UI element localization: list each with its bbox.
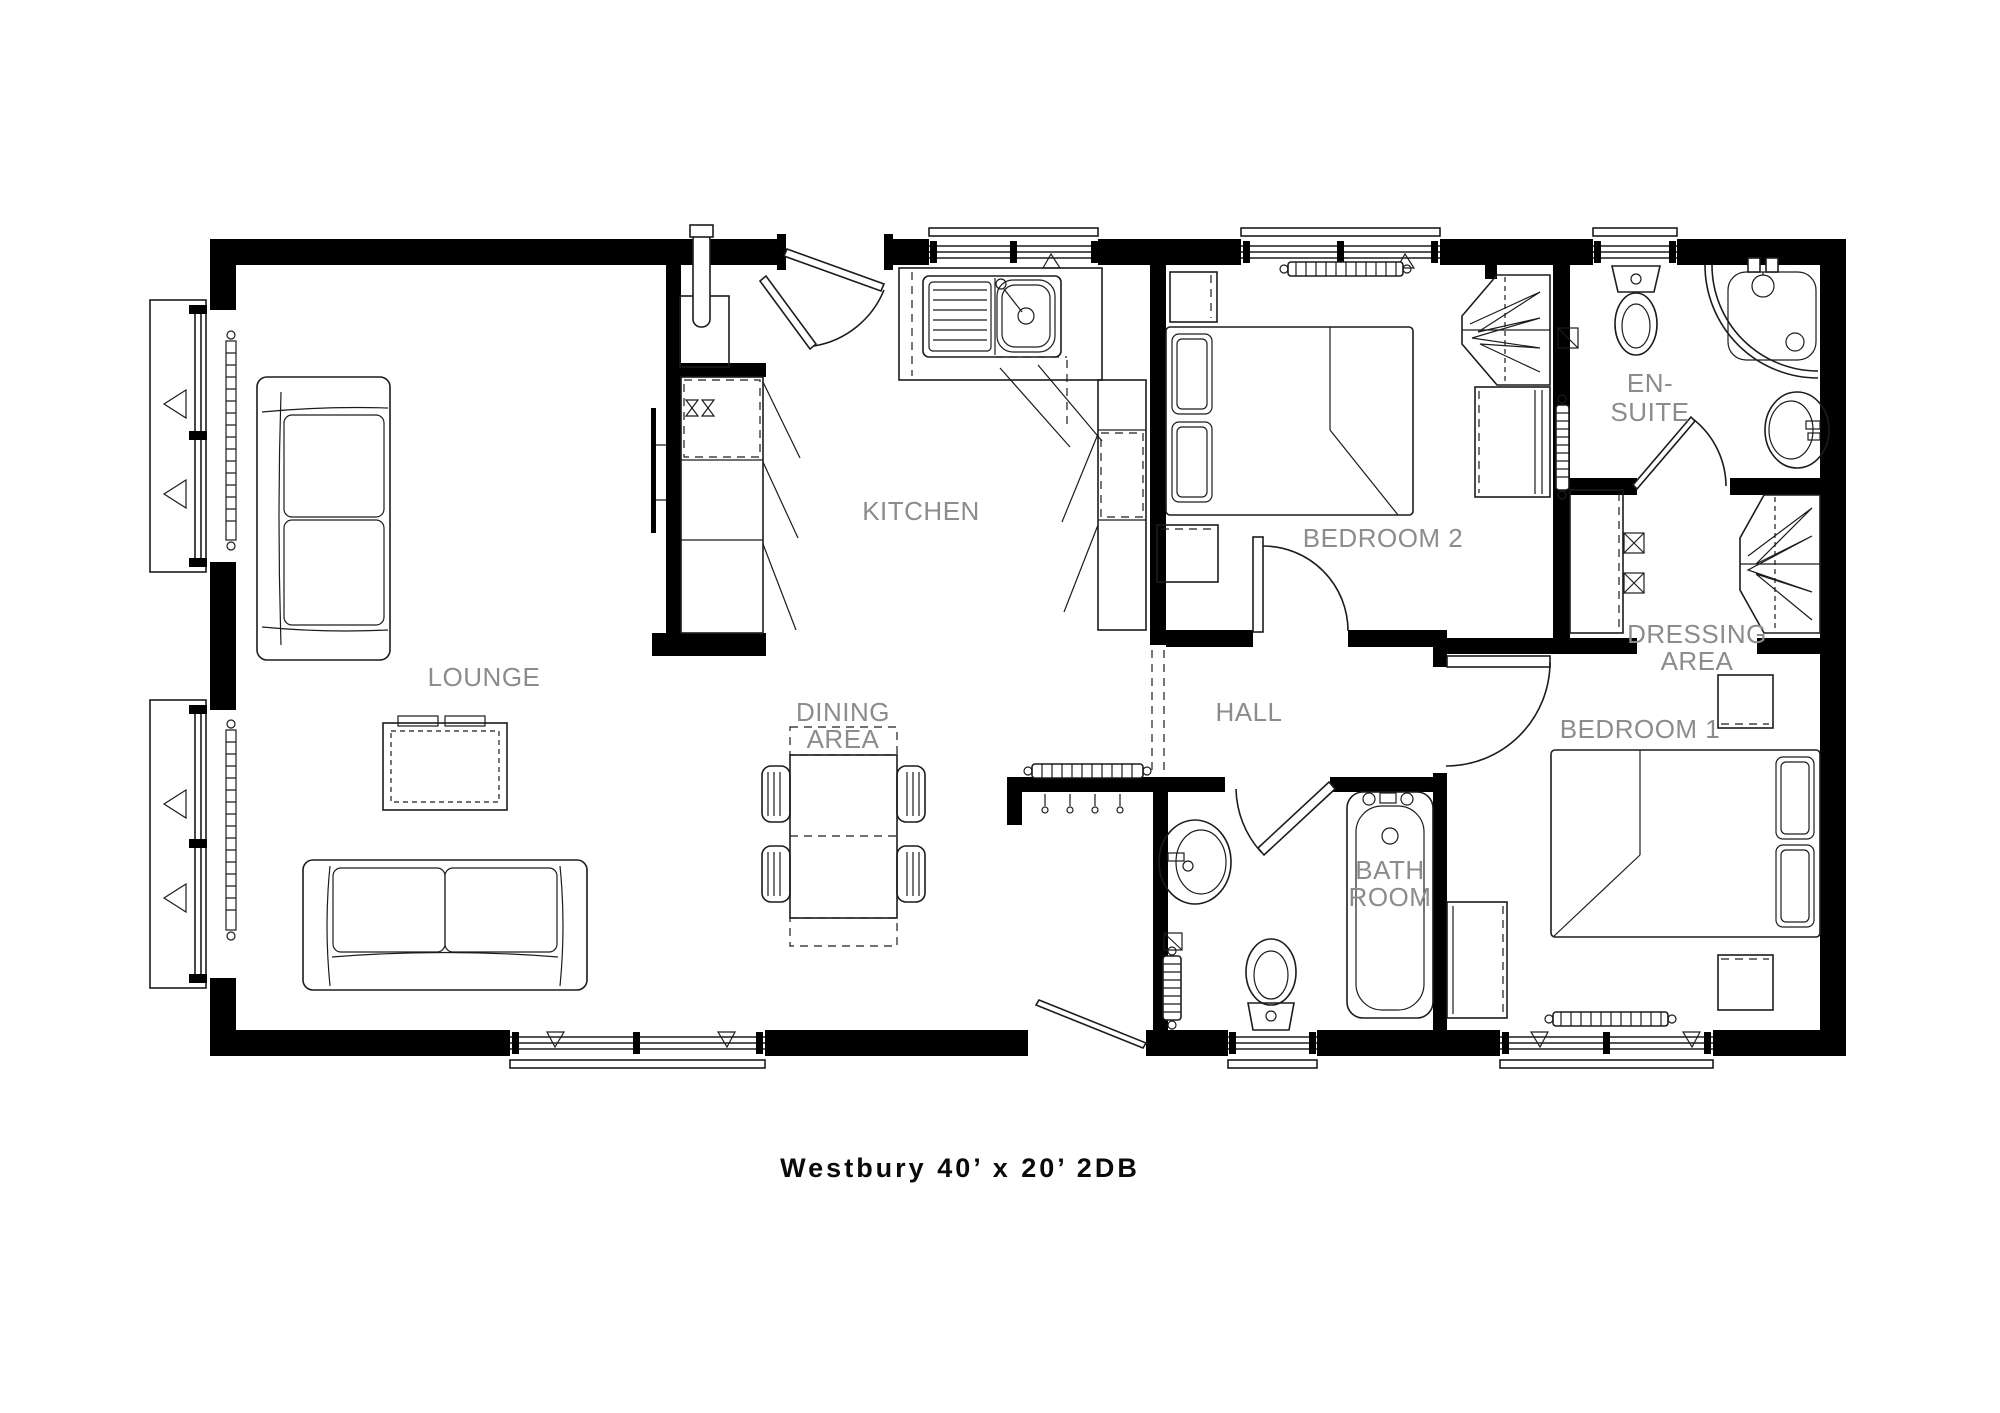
bedside1-bottom (1718, 955, 1773, 1010)
bed1 (1551, 750, 1820, 937)
bedroom1-door (1446, 656, 1550, 766)
label-dressing-2: AREA (1661, 646, 1734, 676)
dining-furniture (762, 727, 925, 946)
tall-units (681, 377, 800, 633)
label-bathroom-2: ROOM (1349, 882, 1432, 912)
label-dining-1: DINING (796, 697, 890, 727)
hall-radiator (1024, 764, 1151, 778)
label-dining-2: AREA (807, 724, 880, 754)
bathroom-toilet (1246, 939, 1296, 1030)
floor-plan-page: LOUNGE KITCHEN DINING AREA HALL BEDROOM … (0, 0, 2000, 1413)
shower (1705, 258, 1818, 378)
label-ensuite-1: EN- (1627, 368, 1673, 398)
label-bathroom-1: BATH (1355, 855, 1424, 885)
label-lounge: LOUNGE (428, 662, 541, 692)
cased-opening (1152, 650, 1164, 774)
label-bedroom1: BEDROOM 1 (1560, 714, 1721, 744)
label-hall: HALL (1215, 697, 1282, 727)
ottoman (1157, 525, 1218, 582)
plan-title: Westbury 40’ x 20’ 2DB (780, 1153, 1140, 1183)
ensuite-door (1633, 417, 1726, 489)
sofa-left (257, 377, 390, 660)
ensuite-basin (1765, 392, 1829, 468)
tv (651, 408, 666, 533)
dressing-table (1570, 490, 1623, 633)
kitchen-furniture (680, 225, 1146, 633)
bedroom1-radiator (1545, 1012, 1676, 1026)
bedroom1-chest (1447, 902, 1507, 1018)
label-kitchen: KITCHEN (862, 496, 980, 526)
coffee-table (383, 716, 507, 810)
bed2 (1166, 327, 1413, 515)
ensuite-fixtures (1556, 258, 1829, 499)
ensuite-window (1593, 228, 1677, 263)
floor-plan-drawing: LOUNGE KITCHEN DINING AREA HALL BEDROOM … (0, 0, 2000, 1413)
ensuite-toilet (1612, 266, 1660, 355)
corner-unit (1000, 365, 1102, 447)
label-bedroom2: BEDROOM 2 (1303, 523, 1464, 553)
dressing-stools (1624, 533, 1644, 593)
coat-hooks (1042, 794, 1123, 813)
bedroom2-wardrobe (1462, 275, 1550, 385)
dressing-furniture (1570, 490, 1820, 633)
bedside-chest-top (1170, 272, 1217, 322)
label-ensuite-2: SUITE (1610, 397, 1689, 427)
dressing-wardrobe (1740, 495, 1820, 633)
bathroom-radiator (1163, 947, 1181, 1029)
bathroom-door (1236, 782, 1335, 855)
dining-chairs (762, 766, 925, 902)
label-dressing-1: DRESSING (1627, 619, 1767, 649)
bedroom2-radiator (1280, 262, 1411, 276)
bathroom-basin (1159, 820, 1231, 904)
bedroom2-dresser (1475, 387, 1550, 497)
ensuite-radiator (1556, 395, 1569, 499)
bedside1-top (1718, 675, 1773, 728)
right-units (1062, 380, 1146, 630)
sofa-bottom (303, 860, 587, 990)
